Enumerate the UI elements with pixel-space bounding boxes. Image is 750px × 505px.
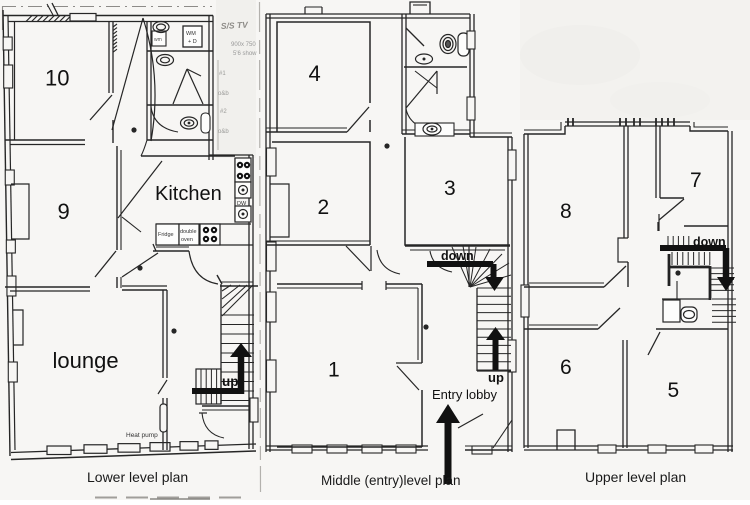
svg-text:Kitchen: Kitchen <box>155 183 222 205</box>
svg-text:#2: #2 <box>220 109 227 115</box>
svg-text:#1: #1 <box>219 71 226 77</box>
svg-text:8: 8 <box>560 200 572 223</box>
svg-text:4: 4 <box>309 61 321 86</box>
svg-text:o&b: o&b <box>218 91 229 97</box>
svg-text:double: double <box>180 229 197 235</box>
svg-text:7: 7 <box>690 169 702 192</box>
svg-text:6: 6 <box>560 356 572 379</box>
svg-text:2: 2 <box>318 196 330 219</box>
svg-text:+ D: + D <box>188 39 197 45</box>
svg-text:wm: wm <box>154 37 162 43</box>
svg-text:down: down <box>441 249 474 263</box>
svg-text:down: down <box>693 235 726 249</box>
svg-text:oven: oven <box>181 237 193 243</box>
svg-text:5'6 show: 5'6 show <box>233 51 257 57</box>
svg-text:5: 5 <box>668 379 680 402</box>
svg-text:o&b: o&b <box>218 129 229 135</box>
svg-text:lounge: lounge <box>53 348 119 373</box>
svg-text:Middle (entry)level plan: Middle (entry)level plan <box>321 473 461 488</box>
svg-text:WM: WM <box>186 31 196 37</box>
svg-text:Entry lobby: Entry lobby <box>432 387 498 402</box>
svg-text:up: up <box>222 374 239 389</box>
svg-text:3: 3 <box>444 177 456 200</box>
svg-text:Upper level plan: Upper level plan <box>585 469 686 485</box>
svg-text:9: 9 <box>58 199 70 224</box>
svg-text:S/S TV: S/S TV <box>221 20 250 31</box>
svg-text:900x 750: 900x 750 <box>231 42 256 48</box>
svg-text:Lower level plan: Lower level plan <box>87 469 188 485</box>
svg-text:1: 1 <box>328 359 340 382</box>
svg-text:10: 10 <box>45 66 69 91</box>
svg-text:Heat pump: Heat pump <box>126 432 158 439</box>
svg-text:up: up <box>488 370 504 385</box>
svg-text:Fridge: Fridge <box>158 232 174 238</box>
